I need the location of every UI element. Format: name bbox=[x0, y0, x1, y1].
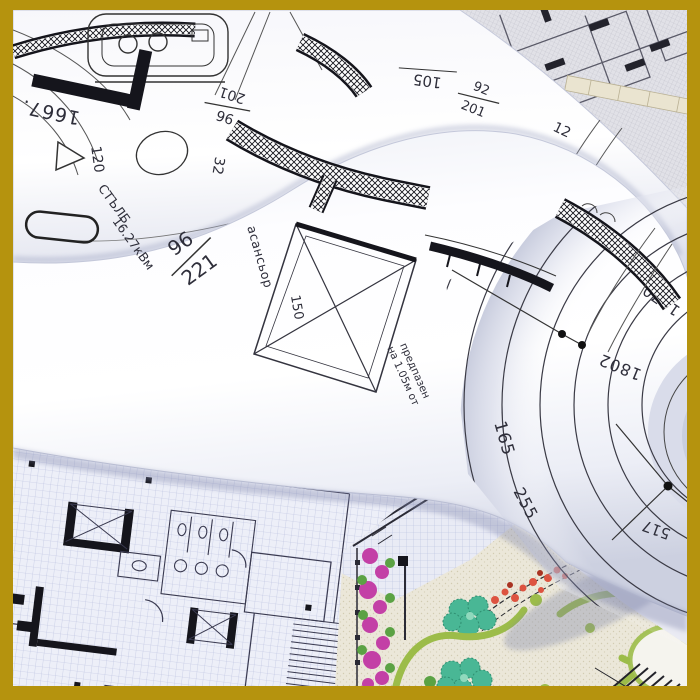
blueprint-photo: 1667. 120 105 92 201 12 bbox=[0, 0, 700, 700]
photo-frame: 1667. 120 105 92 201 12 bbox=[0, 0, 700, 700]
photo-content: 1667. 120 105 92 201 12 bbox=[0, 0, 700, 700]
annotation-32: 32 bbox=[209, 156, 228, 176]
